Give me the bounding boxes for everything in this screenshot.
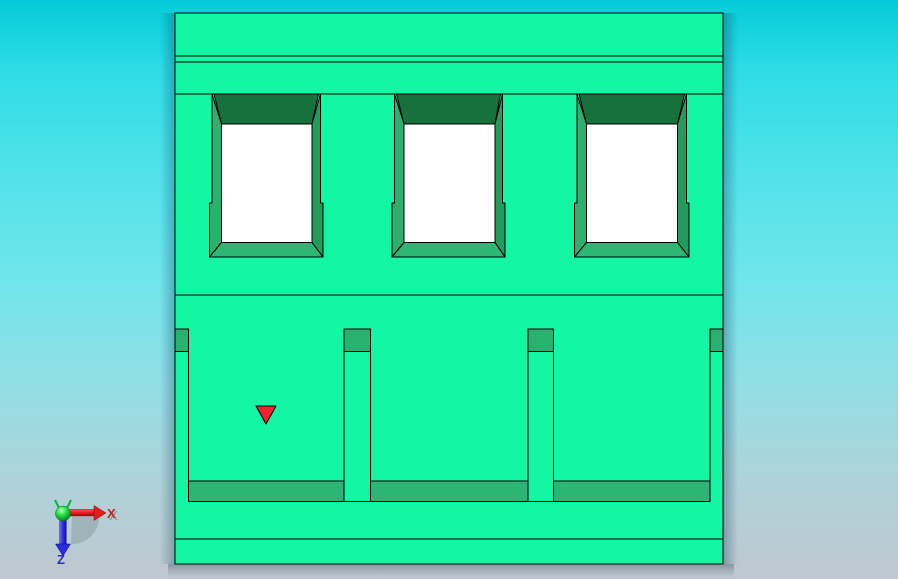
divider-channel-2[interactable] [528,352,554,502]
cad-viewport-background[interactable]: X X Z [0,0,898,579]
window-3-top-bevel[interactable] [579,94,685,124]
window-1-top-bevel[interactable] [214,94,319,124]
window-recess-1[interactable] [210,94,324,257]
window-3-bottom-bevel[interactable] [575,243,690,258]
model-canvas: X X Z [0,0,898,579]
window-2-top-bevel[interactable] [397,94,501,124]
wall-notch-4[interactable] [710,329,723,352]
window-recess-3[interactable] [575,94,690,257]
wall-notch-2[interactable] [344,329,371,352]
triad-shadow [71,517,99,544]
window-2-bottom-bevel[interactable] [392,243,505,258]
z-axis-label: Z [57,552,65,567]
window-2-opening[interactable] [404,124,495,243]
z-axis-arrow[interactable] [56,518,71,556]
wall-notch-1[interactable] [175,329,189,352]
origin-ball[interactable] [56,506,71,521]
cavity-1-bottom-strip[interactable] [189,481,345,502]
window-1-opening[interactable] [222,124,313,243]
orientation-triad[interactable]: X X Z [55,500,118,567]
divider-channel-1[interactable] [344,352,371,502]
cavity-2-bottom-strip[interactable] [371,481,529,502]
cavity-3-bottom-strip[interactable] [554,481,711,502]
window-1-bottom-bevel[interactable] [210,243,324,258]
x-axis-label: X [107,506,116,521]
part-shadow-right [723,13,738,564]
wall-notch-3[interactable] [528,329,554,352]
y-axis-origin[interactable] [55,500,71,521]
part-shadow-left [160,13,175,564]
window-3-opening[interactable] [587,124,678,243]
window-recess-2[interactable] [392,94,505,257]
part-shadow-bottom [168,564,734,577]
